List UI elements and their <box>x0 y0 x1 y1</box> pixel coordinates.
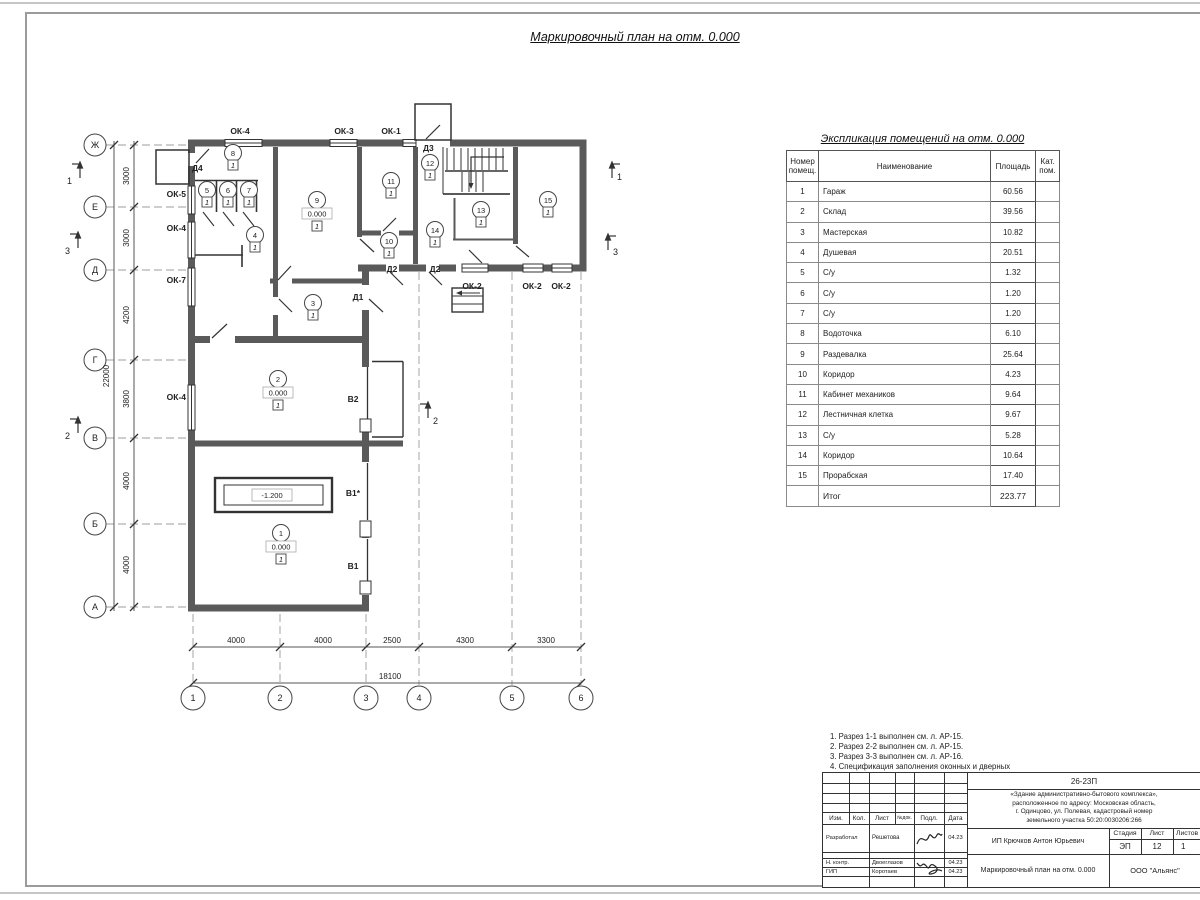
axis-col-3: 3 <box>363 693 368 703</box>
gate-leaves <box>360 367 371 594</box>
table-header-row: Номерпомещ. Наименование Площадь Кат.пом… <box>787 151 1060 182</box>
room-area-cell: 5.28 <box>991 425 1036 445</box>
room-name-cell: Лестничная клетка <box>819 405 991 425</box>
room-category-cell <box>1036 466 1060 486</box>
dim-bottom-4: 4300 <box>456 636 474 645</box>
room-name-cell: Коридор <box>819 364 991 384</box>
floor-mark: 1 <box>276 401 280 410</box>
tb-date-1: 04.23 <box>944 858 967 867</box>
col-header-number: Номерпомещ. <box>787 151 819 182</box>
tb-list: Лист <box>869 812 895 824</box>
axis-row-zh: Ж <box>91 140 100 150</box>
section-markers: 1 3 2 1 3 2 <box>65 162 622 441</box>
axis-col-6: 6 <box>578 693 583 703</box>
table-row: 2 Склад 39.56 <box>787 202 1060 222</box>
floor-mark: 1 <box>279 555 283 564</box>
room-category-cell <box>1036 344 1060 364</box>
room-category-cell <box>1036 324 1060 344</box>
table-row: 6 С/у 1.20 <box>787 283 1060 303</box>
room-number-cell: 9 <box>787 344 819 364</box>
room-name-cell: Прорабская <box>819 466 991 486</box>
tb-ndoc: №док. <box>895 812 914 824</box>
room-number-cell: 10 <box>787 364 819 384</box>
axis-col-2: 2 <box>277 693 282 703</box>
project-code: 26-23П <box>967 773 1200 789</box>
room-number-cell: 13 <box>787 425 819 445</box>
room-number-cell: 3 <box>787 222 819 242</box>
floor-mark: 1 <box>389 189 393 198</box>
room-number: 13 <box>477 206 485 215</box>
gate-label: В1 <box>348 561 359 571</box>
explication-table: Номерпомещ. Наименование Площадь Кат.пом… <box>786 150 1060 507</box>
room-area-cell: 10.82 <box>991 222 1036 242</box>
section-label: 2 <box>65 431 70 441</box>
window-label: ОК-3 <box>334 126 354 136</box>
room-number: 6 <box>226 186 230 195</box>
door-label: Д3 <box>423 143 434 153</box>
tb-role-0: Разработал <box>824 824 871 852</box>
floor-mark: 1 <box>387 249 391 258</box>
tb-name-1: Двоеглазов <box>870 858 915 867</box>
signature-icon <box>915 857 944 877</box>
room-number: 14 <box>431 226 439 235</box>
room-category-cell <box>1036 303 1060 323</box>
gate-label: В1* <box>346 488 361 498</box>
signature-icon <box>915 828 943 850</box>
floor-mark: 1 <box>479 218 483 227</box>
floor-mark: 1 <box>247 198 251 207</box>
room-name-cell: С/у <box>819 303 991 323</box>
plan-details <box>156 104 529 594</box>
axis-row-e: Е <box>92 202 98 212</box>
plan-walls <box>188 140 587 612</box>
window-label: ОК-2 <box>551 281 571 291</box>
room-area-cell: 39.56 <box>991 202 1036 222</box>
floor-mark: 1 <box>253 243 257 252</box>
room-number-cell: 1 <box>787 182 819 202</box>
dim-left-1: 3000 <box>122 167 131 185</box>
note-line: 3. Разрез 3-3 выполнен см. л. АР-16. <box>830 752 1120 762</box>
window-label: ОК-7 <box>167 275 187 285</box>
door-label: Д2 <box>430 264 441 274</box>
dim-bottom-2: 4000 <box>314 636 332 645</box>
section-label: 1 <box>67 176 72 186</box>
room-category-cell <box>1036 182 1060 202</box>
room-number-cell: 12 <box>787 405 819 425</box>
note-line: 1. Разрез 1-1 выполнен см. л. АР-15. <box>830 732 1120 742</box>
room-markers: 1 2 3 4 5 6 7 8 9 10 11 12 13 14 15 0.00… <box>199 145 557 565</box>
room-category-cell <box>1036 364 1060 384</box>
table-row: 9 Раздевалка 25.64 <box>787 344 1060 364</box>
sheet-label: Лист <box>1141 828 1173 839</box>
room-name-cell: Мастерская <box>819 222 991 242</box>
elevation-mark: 0.000 <box>308 210 327 219</box>
room-number: 7 <box>247 186 251 195</box>
note-line: 2. Разрез 2-2 выполнен см. л. АР-15. <box>830 742 1120 752</box>
axis-row-d: Д <box>92 265 98 275</box>
section-label: 3 <box>65 246 70 256</box>
dim-left-3: 4200 <box>122 306 131 324</box>
axis-row-a: А <box>92 602 98 612</box>
col-header-name: Наименование <box>819 151 991 182</box>
room-name-cell: Раздевалка <box>819 344 991 364</box>
table-row: 4 Душевая 20.51 <box>787 242 1060 262</box>
table-row: 14 Коридор 10.64 <box>787 445 1060 465</box>
room-number-cell: 4 <box>787 242 819 262</box>
col-header-area: Площадь <box>991 151 1036 182</box>
table-row: 5 С/у 1.32 <box>787 263 1060 283</box>
room-area-cell: 1.20 <box>991 283 1036 303</box>
room-name-cell: Склад <box>819 202 991 222</box>
room-category-cell <box>1036 222 1060 242</box>
explication-title: Экспликация помещений на отм. 0.000 <box>786 133 1059 145</box>
tb-podp: Подл. <box>914 812 944 824</box>
table-row: 3 Мастерская 10.82 <box>787 222 1060 242</box>
elevation-mark: 0.000 <box>269 389 288 398</box>
room-number: 4 <box>253 231 257 240</box>
room-number-cell: 7 <box>787 303 819 323</box>
floor-mark: 1 <box>315 222 319 231</box>
room-name-cell: Коридор <box>819 445 991 465</box>
room-number-cell: 5 <box>787 263 819 283</box>
client-name: ИП Крючков Антон Юрьевич <box>967 828 1109 854</box>
axis-row-v: В <box>92 433 98 443</box>
floor-mark: 1 <box>546 208 550 217</box>
tb-name-2: Коротаев <box>870 867 915 876</box>
room-area-cell: 6.10 <box>991 324 1036 344</box>
room-number-cell: 6 <box>787 283 819 303</box>
company-name: ООО "Альянс" <box>1109 854 1200 887</box>
room-area-cell: 4.23 <box>991 364 1036 384</box>
note-line: 4. Спецификация заполнения оконных и две… <box>830 762 1120 772</box>
table-row: 15 Прорабская 17.40 <box>787 466 1060 486</box>
room-category-cell <box>1036 202 1060 222</box>
window-label: ОК-4 <box>230 126 250 136</box>
dim-bottom-1: 4000 <box>227 636 245 645</box>
room-category-cell <box>1036 242 1060 262</box>
dim-left-5: 4000 <box>122 472 131 490</box>
section-label: 2 <box>433 416 438 426</box>
tb-role-2: ГИП <box>824 867 871 876</box>
room-name-cell: Водоточка <box>819 324 991 344</box>
tb-izm: Изм. <box>823 812 849 824</box>
room-number: 12 <box>426 159 434 168</box>
room-name-cell: С/у <box>819 263 991 283</box>
room-area-cell: 1.20 <box>991 303 1036 323</box>
project-description: «Здание административно-бытового комплек… <box>967 791 1200 825</box>
stage-label: Стадия <box>1109 828 1141 839</box>
tb-date: Дата <box>944 812 967 824</box>
stairs <box>443 147 508 194</box>
section-label: 1 <box>617 172 622 182</box>
table-total-row: Итог 223.77 <box>787 486 1060 506</box>
window-label: ОК-4 <box>167 223 187 233</box>
room-number: 9 <box>315 196 319 205</box>
room-category-cell <box>1036 263 1060 283</box>
axis-labels: Ж Е Д Г В Б А 1 2 3 4 5 6 <box>91 140 584 703</box>
room-area-cell: 17.40 <box>991 466 1036 486</box>
sheets-label: Листов <box>1173 828 1200 839</box>
dim-bottom-5: 3300 <box>537 636 555 645</box>
table-row: 13 С/у 5.28 <box>787 425 1060 445</box>
window-label: ОК-1 <box>381 126 401 136</box>
room-area-cell: 60.56 <box>991 182 1036 202</box>
room-number: 15 <box>544 196 552 205</box>
room-number: 8 <box>231 149 235 158</box>
table-row: 1 Гараж 60.56 <box>787 182 1060 202</box>
stage-value: ЭП <box>1109 839 1141 854</box>
axis-col-1: 1 <box>190 693 195 703</box>
room-area-cell: 9.64 <box>991 384 1036 404</box>
dim-left-total: 22000 <box>102 364 111 387</box>
room-category-cell <box>1036 384 1060 404</box>
sheets-value: 1 <box>1173 839 1200 854</box>
window-label: ОК-2 <box>462 281 482 291</box>
door-label: Д1 <box>353 292 364 302</box>
sheet-value: 12 <box>1141 839 1173 854</box>
axis-row-b: Б <box>92 519 98 529</box>
room-number-cell: 14 <box>787 445 819 465</box>
room-number: 10 <box>385 237 393 246</box>
floor-mark: 1 <box>231 161 235 170</box>
dimension-texts: 3000 3000 4200 3800 4000 4000 22000 4000… <box>102 167 555 681</box>
floor-mark: 1 <box>428 171 432 180</box>
room-number-cell: 11 <box>787 384 819 404</box>
room-name-cell: С/у <box>819 283 991 303</box>
door-label: Д2 <box>387 264 398 274</box>
room-area-cell: 25.64 <box>991 344 1036 364</box>
room-number: 5 <box>205 186 209 195</box>
dim-bottom-3: 2500 <box>383 636 401 645</box>
dim-bottom-total: 18100 <box>379 672 402 681</box>
tb-kol: Кол. <box>849 812 869 824</box>
room-area-cell: 1.32 <box>991 263 1036 283</box>
dim-left-4: 3800 <box>122 390 131 408</box>
room-number: 1 <box>279 529 283 538</box>
axis-col-5: 5 <box>509 693 514 703</box>
room-number-cell: 2 <box>787 202 819 222</box>
floor-mark: 1 <box>311 311 315 320</box>
tb-date-2: 04.23 <box>944 867 967 876</box>
table-row: 7 С/у 1.20 <box>787 303 1060 323</box>
tb-role-1: Н. контр. <box>824 858 871 867</box>
room-area-cell: 9.67 <box>991 405 1036 425</box>
room-area-cell: 10.64 <box>991 445 1036 465</box>
door-label: Д4 <box>192 163 203 173</box>
entry-porch <box>452 288 483 312</box>
window-label: ОК-2 <box>522 281 542 291</box>
total-area: 223.77 <box>991 486 1036 506</box>
tb-name-0: Решетова <box>870 824 915 852</box>
room-number-cell: 8 <box>787 324 819 344</box>
room-category-cell <box>1036 283 1060 303</box>
room-number: 2 <box>276 375 280 384</box>
elevation-mark: 0.000 <box>272 543 291 552</box>
drawing-title: Маркировочный план на отм. 0.000 <box>967 854 1109 887</box>
table-row: 11 Кабинет механиков 9.64 <box>787 384 1060 404</box>
axis-row-g: Г <box>93 355 98 365</box>
room-number: 11 <box>387 177 395 186</box>
table-row: 8 Водоточка 6.10 <box>787 324 1060 344</box>
ramp <box>372 362 403 438</box>
tb-date-0: 04.23 <box>944 824 967 852</box>
col-header-category: Кат.пом. <box>1036 151 1060 182</box>
room-category-cell <box>1036 405 1060 425</box>
shower-bench <box>195 245 243 267</box>
dim-left-6: 4000 <box>122 556 131 574</box>
pit-elevation: -1.200 <box>261 491 282 500</box>
room-number-cell: 15 <box>787 466 819 486</box>
room-area-cell: 20.51 <box>991 242 1036 262</box>
room-name-cell: Гараж <box>819 182 991 202</box>
room-name-cell: С/у <box>819 425 991 445</box>
room-category-cell <box>1036 425 1060 445</box>
room-number: 3 <box>311 299 315 308</box>
section-label: 3 <box>613 247 618 257</box>
window-label: ОК-5 <box>167 189 187 199</box>
title-block: Изм. Кол. Лист №док. Подл. Дата Разработ… <box>822 772 1200 888</box>
table-row: 10 Коридор 4.23 <box>787 364 1060 384</box>
room-name-cell: Душевая <box>819 242 991 262</box>
axis-col-4: 4 <box>416 693 421 703</box>
explication: Экспликация помещений на отм. 0.000 Номе… <box>786 133 1059 507</box>
room-name-cell: Кабинет механиков <box>819 384 991 404</box>
table-row: 12 Лестничная клетка 9.67 <box>787 405 1060 425</box>
floor-mark: 1 <box>205 198 209 207</box>
dim-left-2: 3000 <box>122 229 131 247</box>
gate-label: В2 <box>348 394 359 404</box>
room-category-cell <box>1036 445 1060 465</box>
floor-mark: 1 <box>226 198 230 207</box>
floor-mark: 1 <box>433 238 437 247</box>
window-label: ОК-4 <box>167 392 187 402</box>
total-label: Итог <box>819 486 991 506</box>
